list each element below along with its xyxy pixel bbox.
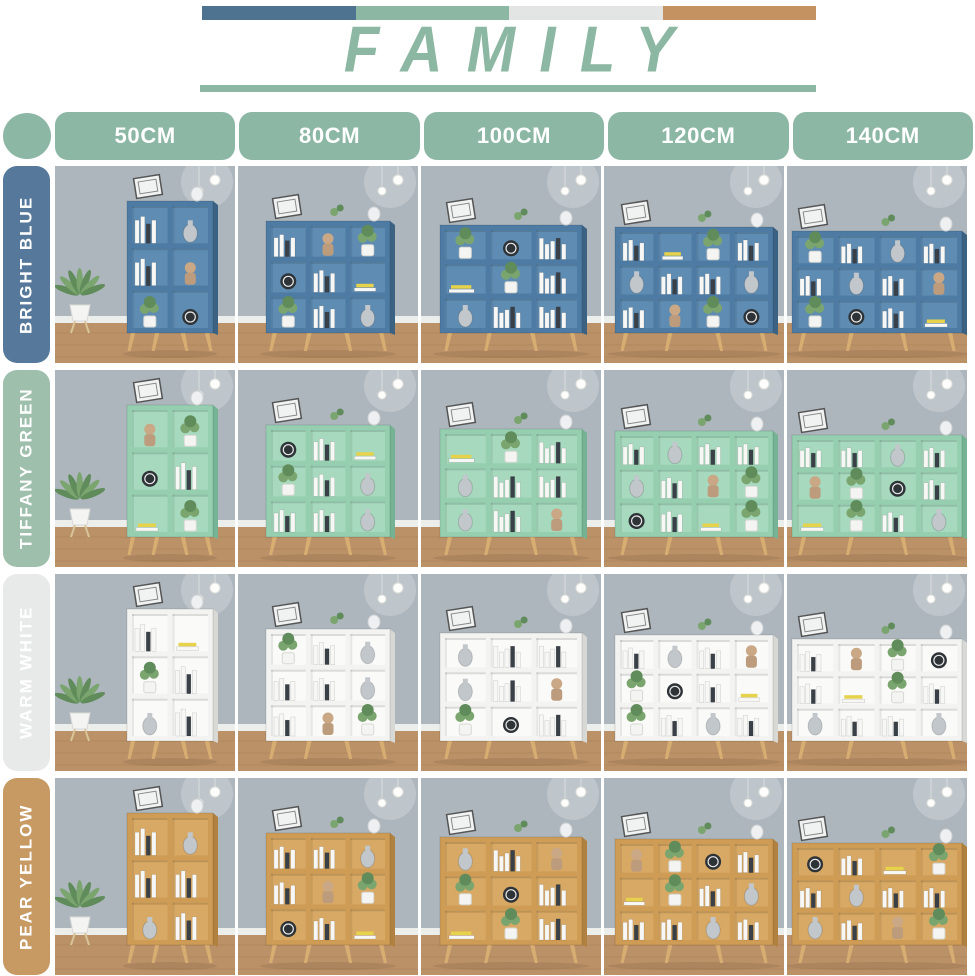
size-pills: 50CM 80CM 100CM 120CM 140CM	[55, 112, 975, 160]
row-label-pear-yellow: PEAR YELLOW	[3, 778, 50, 975]
row-label-tiffany-green: TIFFANY GREEN	[3, 370, 50, 567]
photo-warm-white-80cm	[238, 574, 418, 771]
row-warm-white: WARM WHITE	[0, 574, 975, 771]
size-pill-100cm: 100CM	[424, 112, 604, 160]
photo-warm-white-50cm	[55, 574, 235, 771]
photo-tiffany-green-50cm	[55, 370, 235, 567]
photo-bright-blue-80cm	[238, 166, 418, 363]
photo-tiffany-green-80cm	[238, 370, 418, 567]
row-photos-warm-white	[55, 574, 975, 771]
photo-warm-white-120cm	[604, 574, 784, 771]
row-bright-blue: BRIGHT BLUE	[0, 166, 975, 363]
size-pill-80cm: 80CM	[239, 112, 419, 160]
photo-pear-yellow-120cm	[604, 778, 784, 975]
photo-bright-blue-140cm	[787, 166, 967, 363]
size-header: 50CM 80CM 100CM 120CM 140CM	[0, 112, 975, 160]
row-photos-pear-yellow	[55, 778, 975, 975]
photo-bright-blue-120cm	[604, 166, 784, 363]
size-pill-120cm: 120CM	[608, 112, 788, 160]
photo-tiffany-green-100cm	[421, 370, 601, 567]
row-photos-tiffany-green	[55, 370, 975, 567]
photo-tiffany-green-120cm	[604, 370, 784, 567]
banner: FAMILY	[0, 0, 975, 108]
size-pill-50cm: 50CM	[55, 112, 235, 160]
banner-title: FAMILY	[200, 10, 818, 91]
photo-bright-blue-50cm	[55, 166, 235, 363]
photo-pear-yellow-50cm	[55, 778, 235, 975]
photo-pear-yellow-80cm	[238, 778, 418, 975]
size-pill-140cm: 140CM	[793, 112, 973, 160]
photo-warm-white-140cm	[787, 574, 967, 771]
row-label-warm-white: WARM WHITE	[3, 574, 50, 771]
photo-bright-blue-100cm	[421, 166, 601, 363]
row-pear-yellow: PEAR YELLOW	[0, 778, 975, 975]
row-label-bright-blue: BRIGHT BLUE	[3, 166, 50, 363]
photo-warm-white-100cm	[421, 574, 601, 771]
photo-pear-yellow-140cm	[787, 778, 967, 975]
photo-tiffany-green-140cm	[787, 370, 967, 567]
photo-pear-yellow-100cm	[421, 778, 601, 975]
size-header-dot	[3, 113, 51, 159]
rows-grid: BRIGHT BLUETIFFANY GREENWARM WHITEPEAR Y…	[0, 166, 975, 975]
banner-underline	[200, 85, 816, 92]
bookshelf-family-infographic: FAMILY 50CM 80CM 100CM 120CM 140CM BRIGH…	[0, 0, 975, 976]
row-tiffany-green: TIFFANY GREEN	[0, 370, 975, 567]
row-photos-bright-blue	[55, 166, 975, 363]
